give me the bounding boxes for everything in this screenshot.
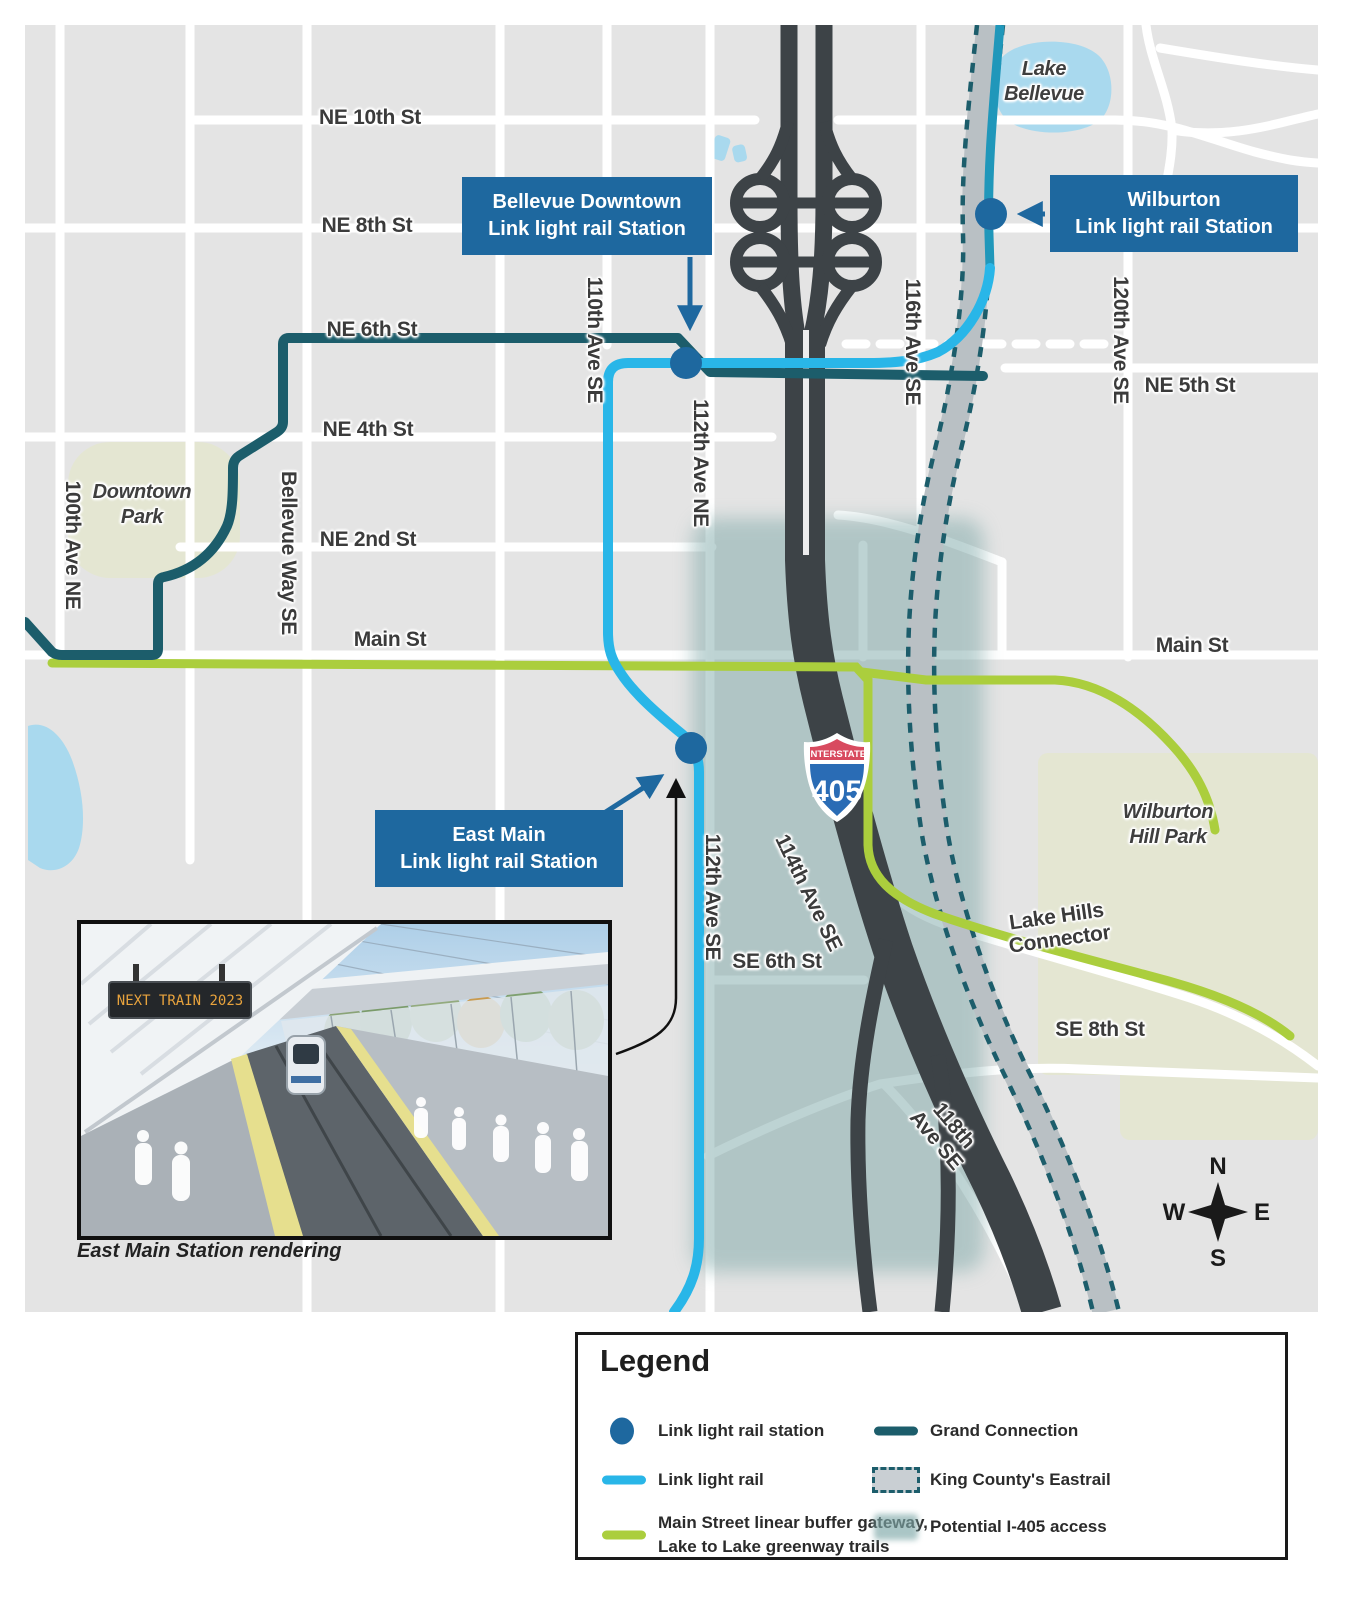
street-label-116th-ave: 116th Ave SE (900, 279, 924, 406)
legend-rail-symbol (602, 1476, 646, 1485)
street-label-se-6th: SE 6th St (732, 950, 821, 974)
callout-east-main-line2: Link light rail Station (381, 849, 617, 876)
downtown-park-line2: Park (93, 505, 192, 530)
legend-access-symbol (874, 1514, 918, 1540)
callout-wilburton-line2: Link light rail Station (1056, 214, 1292, 241)
inset-caption: East Main Station rendering (77, 1240, 341, 1263)
legend-rail-label: Link light rail (658, 1468, 764, 1492)
bellevue-transit-map-page: INTERSTATE 405 N E S W NE 10th St NE 8th… (0, 0, 1346, 1612)
legend-access-label: Potential I-405 access (930, 1515, 1107, 1539)
wilburton-park-line1: Wilburton (1123, 800, 1213, 825)
compass-n: N (1209, 1153, 1226, 1180)
street-label-120th-ave: 120th Ave SE (1108, 276, 1132, 404)
street-label-ne-10th: NE 10th St (319, 106, 421, 130)
place-label-downtown-park: Downtown Park (93, 480, 192, 530)
callout-east-main-station: East Main Link light rail Station (375, 810, 623, 887)
legend-grand-connection-symbol (874, 1427, 918, 1436)
lake-bellevue-line2: Bellevue (1004, 82, 1084, 107)
legend-station-label: Link light rail station (658, 1419, 824, 1443)
street-label-100th-ave: 100th Ave NE (60, 480, 84, 609)
bellevue-downtown-station-dot (670, 347, 702, 379)
east-main-station-dot (675, 732, 707, 764)
callout-wilburton-line1: Wilburton (1056, 187, 1292, 214)
street-label-112th-ave-ne: 112th Ave NE (688, 399, 712, 527)
east-main-rendering-inset: NEXT TRAIN 2023 (77, 920, 612, 1240)
legend-eastrail-label: King County's Eastrail (930, 1468, 1111, 1492)
callout-east-main-line1: East Main (381, 822, 617, 849)
compass-s: S (1210, 1245, 1226, 1272)
legend-greenway-symbol (602, 1531, 646, 1540)
street-label-bellevue-way: Bellevue Way SE (276, 471, 300, 635)
compass-e: E (1254, 1199, 1270, 1226)
compass-w: W (1163, 1199, 1186, 1226)
legend-station-symbol (610, 1418, 634, 1445)
shield-number-text: 405 (812, 775, 862, 808)
street-label-ne-5th: NE 5th St (1145, 374, 1236, 398)
legend-title: Legend (600, 1343, 710, 1379)
street-label-ne-8th: NE 8th St (322, 214, 413, 238)
street-label-ne-2nd: NE 2nd St (320, 528, 416, 552)
callout-bd-line1: Bellevue Downtown (468, 189, 706, 216)
callout-bd-line2: Link light rail Station (468, 216, 706, 243)
street-label-se-8th: SE 8th St (1055, 1018, 1144, 1042)
street-label-main-east: Main St (1156, 634, 1229, 658)
lake-bellevue-line1: Lake (1004, 57, 1084, 82)
legend-eastrail-symbol (872, 1467, 920, 1493)
station-rendering-art: NEXT TRAIN 2023 (81, 924, 608, 1236)
shield-interstate-text: INTERSTATE (808, 749, 866, 760)
place-label-wilburton-hill-park: Wilburton Hill Park (1123, 800, 1213, 850)
downtown-park-line1: Downtown (93, 480, 192, 505)
rendering-train (287, 1036, 325, 1094)
street-label-110th-ave: 110th Ave SE (582, 277, 606, 404)
next-train-sign-text: NEXT TRAIN 2023 (117, 993, 243, 1009)
street-label-main-west: Main St (354, 628, 427, 652)
street-label-ne-4th: NE 4th St (323, 418, 414, 442)
legend-box: Legend Link light rail station Link ligh… (575, 1332, 1288, 1560)
callout-wilburton-station: Wilburton Link light rail Station (1050, 175, 1298, 252)
wilburton-park-line2: Hill Park (1123, 825, 1213, 850)
legend-grand-connection-label: Grand Connection (930, 1419, 1078, 1443)
wilburton-station-dot (975, 198, 1007, 230)
street-label-ne-6th: NE 6th St (327, 318, 418, 342)
callout-bellevue-downtown-station: Bellevue Downtown Link light rail Statio… (462, 177, 712, 255)
place-label-lake-bellevue: Lake Bellevue (1004, 57, 1084, 107)
street-label-112th-ave-se: 112th Ave SE (700, 834, 724, 961)
